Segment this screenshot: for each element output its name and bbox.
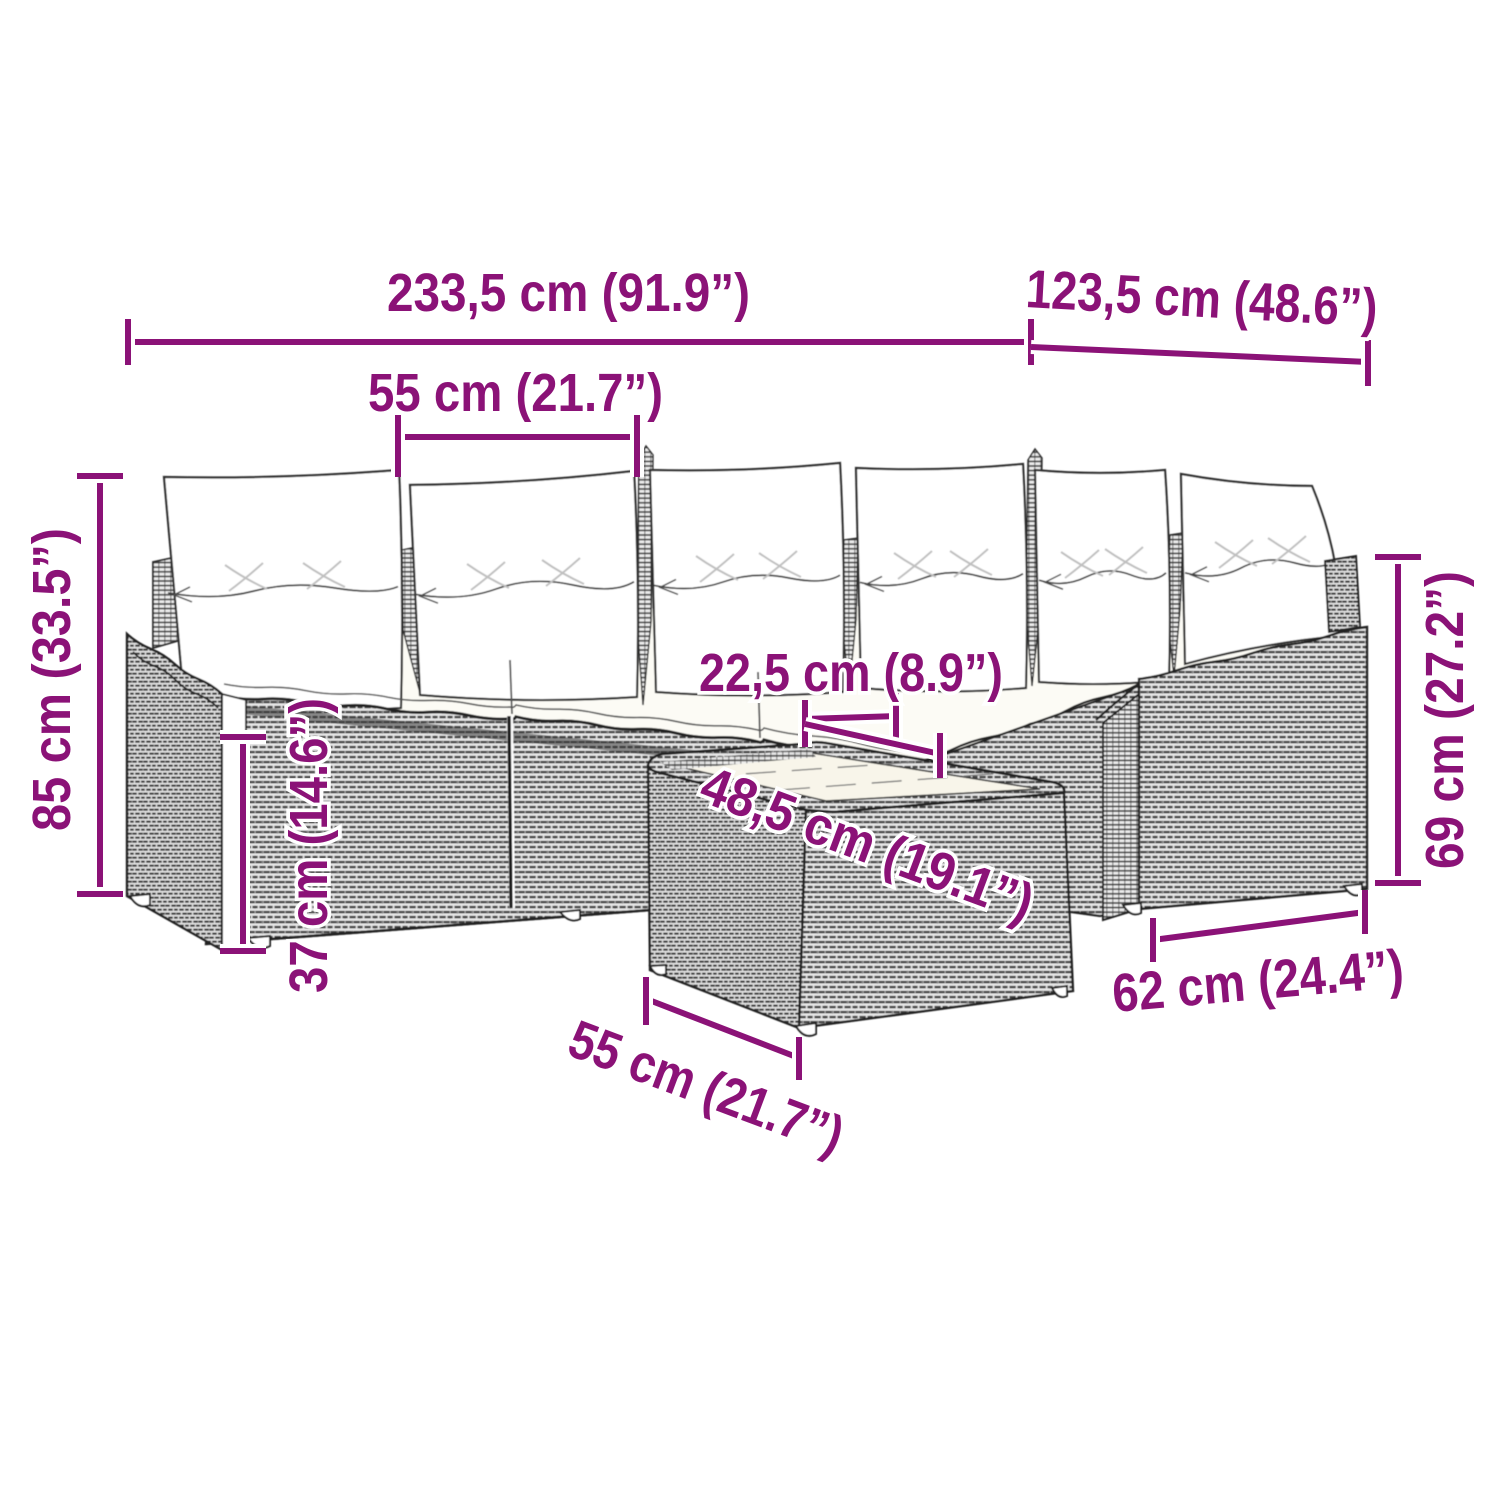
svg-text:233,5 cm (91.9”): 233,5 cm (91.9”) [387, 263, 750, 323]
svg-text:22,5 cm (8.9”): 22,5 cm (8.9”) [699, 643, 1003, 703]
svg-text:55 cm (21.7”): 55 cm (21.7”) [368, 363, 663, 423]
svg-text:85 cm (33.5”): 85 cm (33.5”) [22, 528, 82, 831]
svg-text:37 cm (14.6”): 37 cm (14.6”) [279, 698, 339, 993]
svg-text:69 cm (27.2”): 69 cm (27.2”) [1415, 571, 1475, 869]
